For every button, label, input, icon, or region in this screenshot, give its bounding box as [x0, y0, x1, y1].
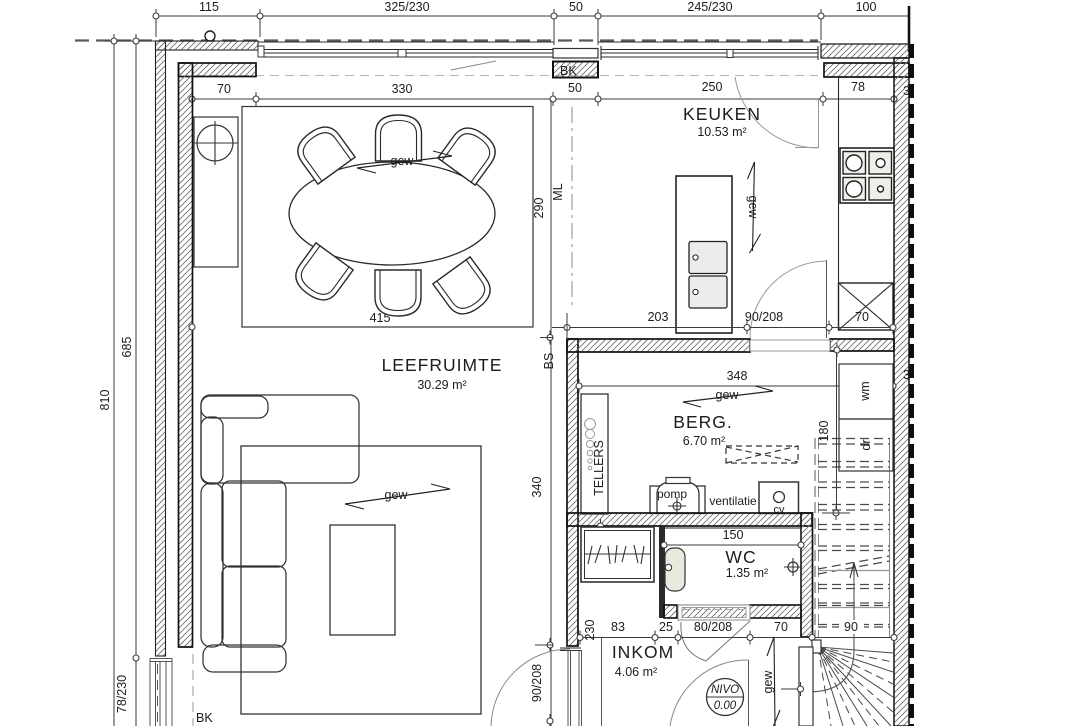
svg-text:NIVO: NIVO	[711, 684, 739, 696]
svg-text:70: 70	[774, 620, 788, 634]
svg-text:pomp: pomp	[657, 487, 687, 501]
svg-text:80/208: 80/208	[694, 620, 732, 634]
svg-text:78/230: 78/230	[115, 675, 129, 713]
svg-text:LEEFRUIMTE: LEEFRUIMTE	[382, 355, 503, 375]
svg-text:90/208: 90/208	[530, 664, 544, 702]
svg-text:ML: ML	[551, 183, 565, 200]
svg-text:325/230: 325/230	[384, 0, 429, 14]
svg-text:100: 100	[856, 0, 877, 14]
svg-text:BK: BK	[196, 711, 213, 725]
svg-text:BERG.: BERG.	[673, 412, 732, 432]
svg-text:4.06 m²: 4.06 m²	[615, 665, 657, 679]
svg-text:90: 90	[844, 620, 858, 634]
svg-text:810: 810	[98, 390, 112, 411]
svg-text:330: 330	[392, 82, 413, 96]
svg-text:6.70 m²: 6.70 m²	[683, 434, 725, 448]
svg-text:50: 50	[568, 81, 582, 95]
svg-text:0.00: 0.00	[714, 700, 737, 712]
svg-text:25: 25	[659, 620, 673, 634]
svg-text:gew: gew	[716, 388, 740, 402]
svg-text:TELLERS: TELLERS	[592, 440, 606, 496]
svg-text:90/208: 90/208	[745, 310, 783, 324]
svg-text:10.53 m²: 10.53 m²	[697, 125, 746, 139]
svg-text:3: 3	[903, 368, 910, 382]
svg-text:78: 78	[851, 80, 865, 94]
svg-text:wm: wm	[858, 381, 872, 401]
svg-text:BS: BS	[542, 353, 556, 370]
svg-text:348: 348	[727, 369, 748, 383]
svg-text:245/230: 245/230	[687, 0, 732, 14]
svg-text:70: 70	[855, 310, 869, 324]
svg-text:WC: WC	[725, 547, 756, 567]
svg-text:150: 150	[723, 528, 744, 542]
svg-text:340: 340	[530, 477, 544, 498]
svg-text:115: 115	[199, 0, 219, 14]
svg-text:83: 83	[611, 620, 625, 634]
svg-text:dr: dr	[859, 439, 873, 450]
svg-text:gew: gew	[761, 670, 775, 694]
svg-text:ventilatie: ventilatie	[709, 494, 757, 508]
svg-text:gew: gew	[391, 154, 415, 168]
svg-text:KEUKEN: KEUKEN	[683, 104, 761, 124]
svg-text:gew: gew	[746, 196, 760, 220]
svg-text:180: 180	[817, 421, 831, 442]
svg-text:290: 290	[532, 198, 546, 219]
svg-text:70: 70	[217, 82, 231, 96]
svg-text:1.35 m²: 1.35 m²	[726, 566, 768, 580]
svg-text:BK: BK	[560, 64, 577, 78]
svg-text:685: 685	[120, 337, 134, 358]
svg-text:203: 203	[648, 310, 669, 324]
svg-text:30.29 m²: 30.29 m²	[417, 378, 466, 392]
svg-text:50: 50	[569, 0, 583, 14]
svg-text:250: 250	[702, 80, 723, 94]
svg-text:gew: gew	[385, 488, 409, 502]
svg-text:INKOM: INKOM	[612, 642, 674, 662]
svg-text:230: 230	[583, 620, 597, 641]
